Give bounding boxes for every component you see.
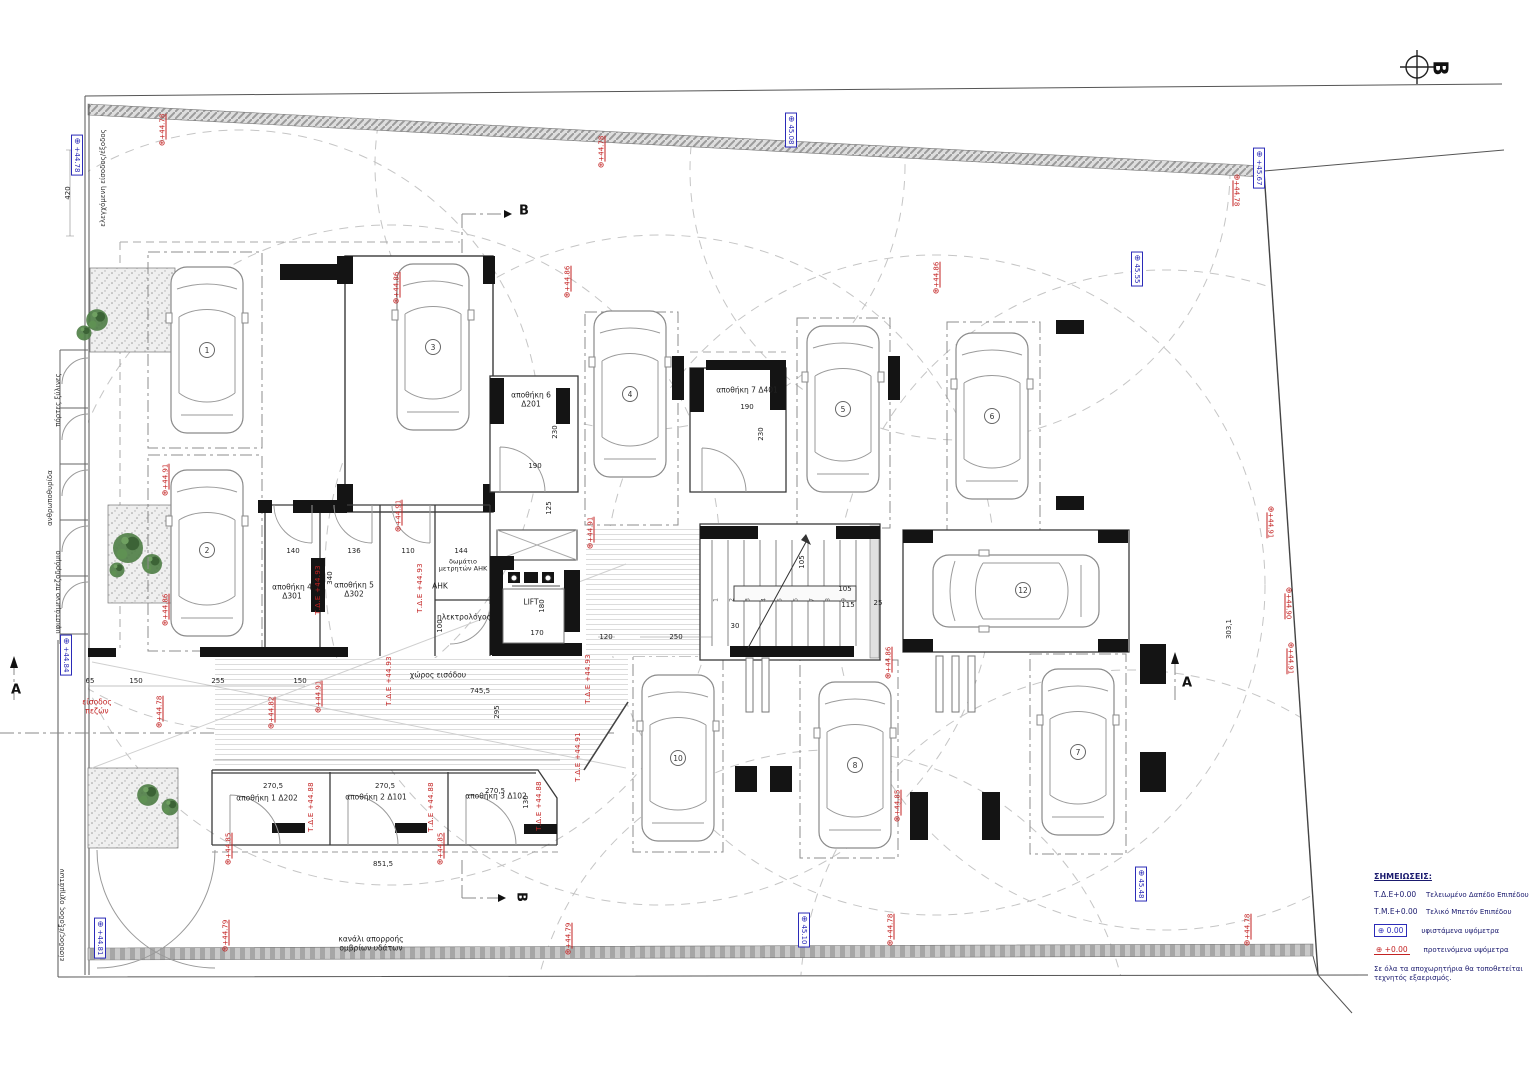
north-label: B xyxy=(1429,60,1453,75)
legend-desc: Τελειωμένο Δαπέδο Επιπέδου xyxy=(1426,891,1529,899)
plan-linework xyxy=(0,0,1536,1086)
legend-desc: υφιστάμενα υψόμετρα xyxy=(1421,927,1499,935)
legend-row: ⊕ 0.00 υφιστάμενα υψόμετρα xyxy=(1374,924,1532,937)
legend-title: ΣΗΜΕΙΩΣΕΙΣ: xyxy=(1374,872,1532,881)
legend-symbol-existing-level: ⊕ 0.00 xyxy=(1374,924,1407,937)
legend-symbol-tde: Τ.Δ.Ε+0.00 xyxy=(1374,890,1426,899)
legend-desc: προτεινόμενα υψόμετρα xyxy=(1424,946,1509,954)
legend-desc: Τελικό Μπετόν Επιπέδου xyxy=(1426,908,1512,916)
legend: ΣΗΜΕΙΩΣΕΙΣ: Τ.Δ.Ε+0.00 Τελειωμένο Δαπέδο… xyxy=(1374,872,1532,983)
legend-row: Τ.Μ.Ε+0.00 Τελικό Μπετόν Επιπέδου xyxy=(1374,907,1532,916)
floor-plan: ⊕ +44.78⊕ 45.08⊕ +45.67⊕ 45.55⊕ +44.84⊕ … xyxy=(0,0,1536,1086)
legend-symbol-tme: Τ.Μ.Ε+0.00 xyxy=(1374,907,1426,916)
legend-symbol-proposed-level: ⊕ +0.00 xyxy=(1374,945,1410,955)
legend-row: Τ.Δ.Ε+0.00 Τελειωμένο Δαπέδο Επιπέδου xyxy=(1374,890,1532,899)
legend-note: Σε όλα τα αποχωρητήρια θα τοποθετείται τ… xyxy=(1374,965,1524,983)
legend-row: ⊕ +0.00 προτεινόμενα υψόμετρα xyxy=(1374,945,1532,955)
